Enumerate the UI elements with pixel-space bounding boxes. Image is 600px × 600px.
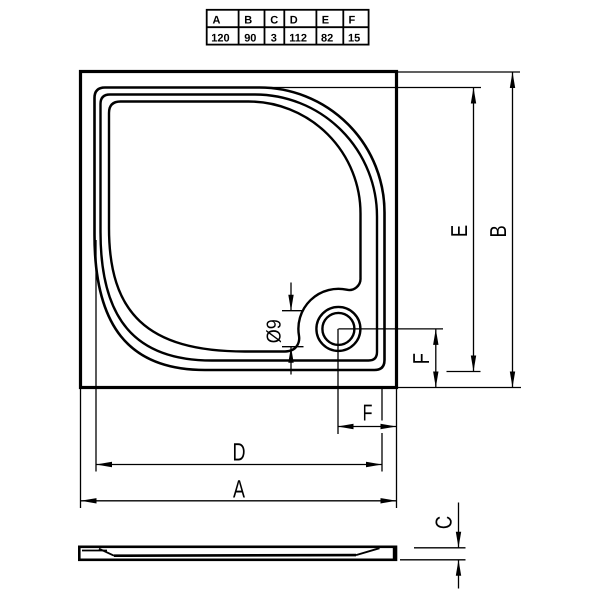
- svg-text:D: D: [290, 14, 298, 26]
- svg-text:B: B: [244, 14, 252, 26]
- svg-text:E: E: [322, 14, 329, 26]
- svg-text:112: 112: [289, 32, 307, 44]
- svg-text:B: B: [485, 225, 511, 237]
- svg-text:F: F: [349, 14, 356, 26]
- svg-text:Ø9: Ø9: [264, 319, 286, 343]
- svg-text:F: F: [363, 399, 373, 425]
- svg-text:A: A: [233, 476, 245, 504]
- svg-text:F: F: [408, 353, 434, 364]
- svg-text:D: D: [232, 439, 245, 467]
- svg-text:15: 15: [348, 32, 360, 44]
- svg-text:90: 90: [244, 32, 256, 44]
- svg-text:C: C: [430, 516, 456, 529]
- svg-text:120: 120: [211, 32, 229, 44]
- svg-text:C: C: [270, 14, 278, 26]
- svg-text:3: 3: [271, 32, 277, 44]
- svg-text:82: 82: [321, 32, 333, 44]
- svg-text:E: E: [446, 225, 472, 237]
- svg-text:A: A: [213, 14, 221, 26]
